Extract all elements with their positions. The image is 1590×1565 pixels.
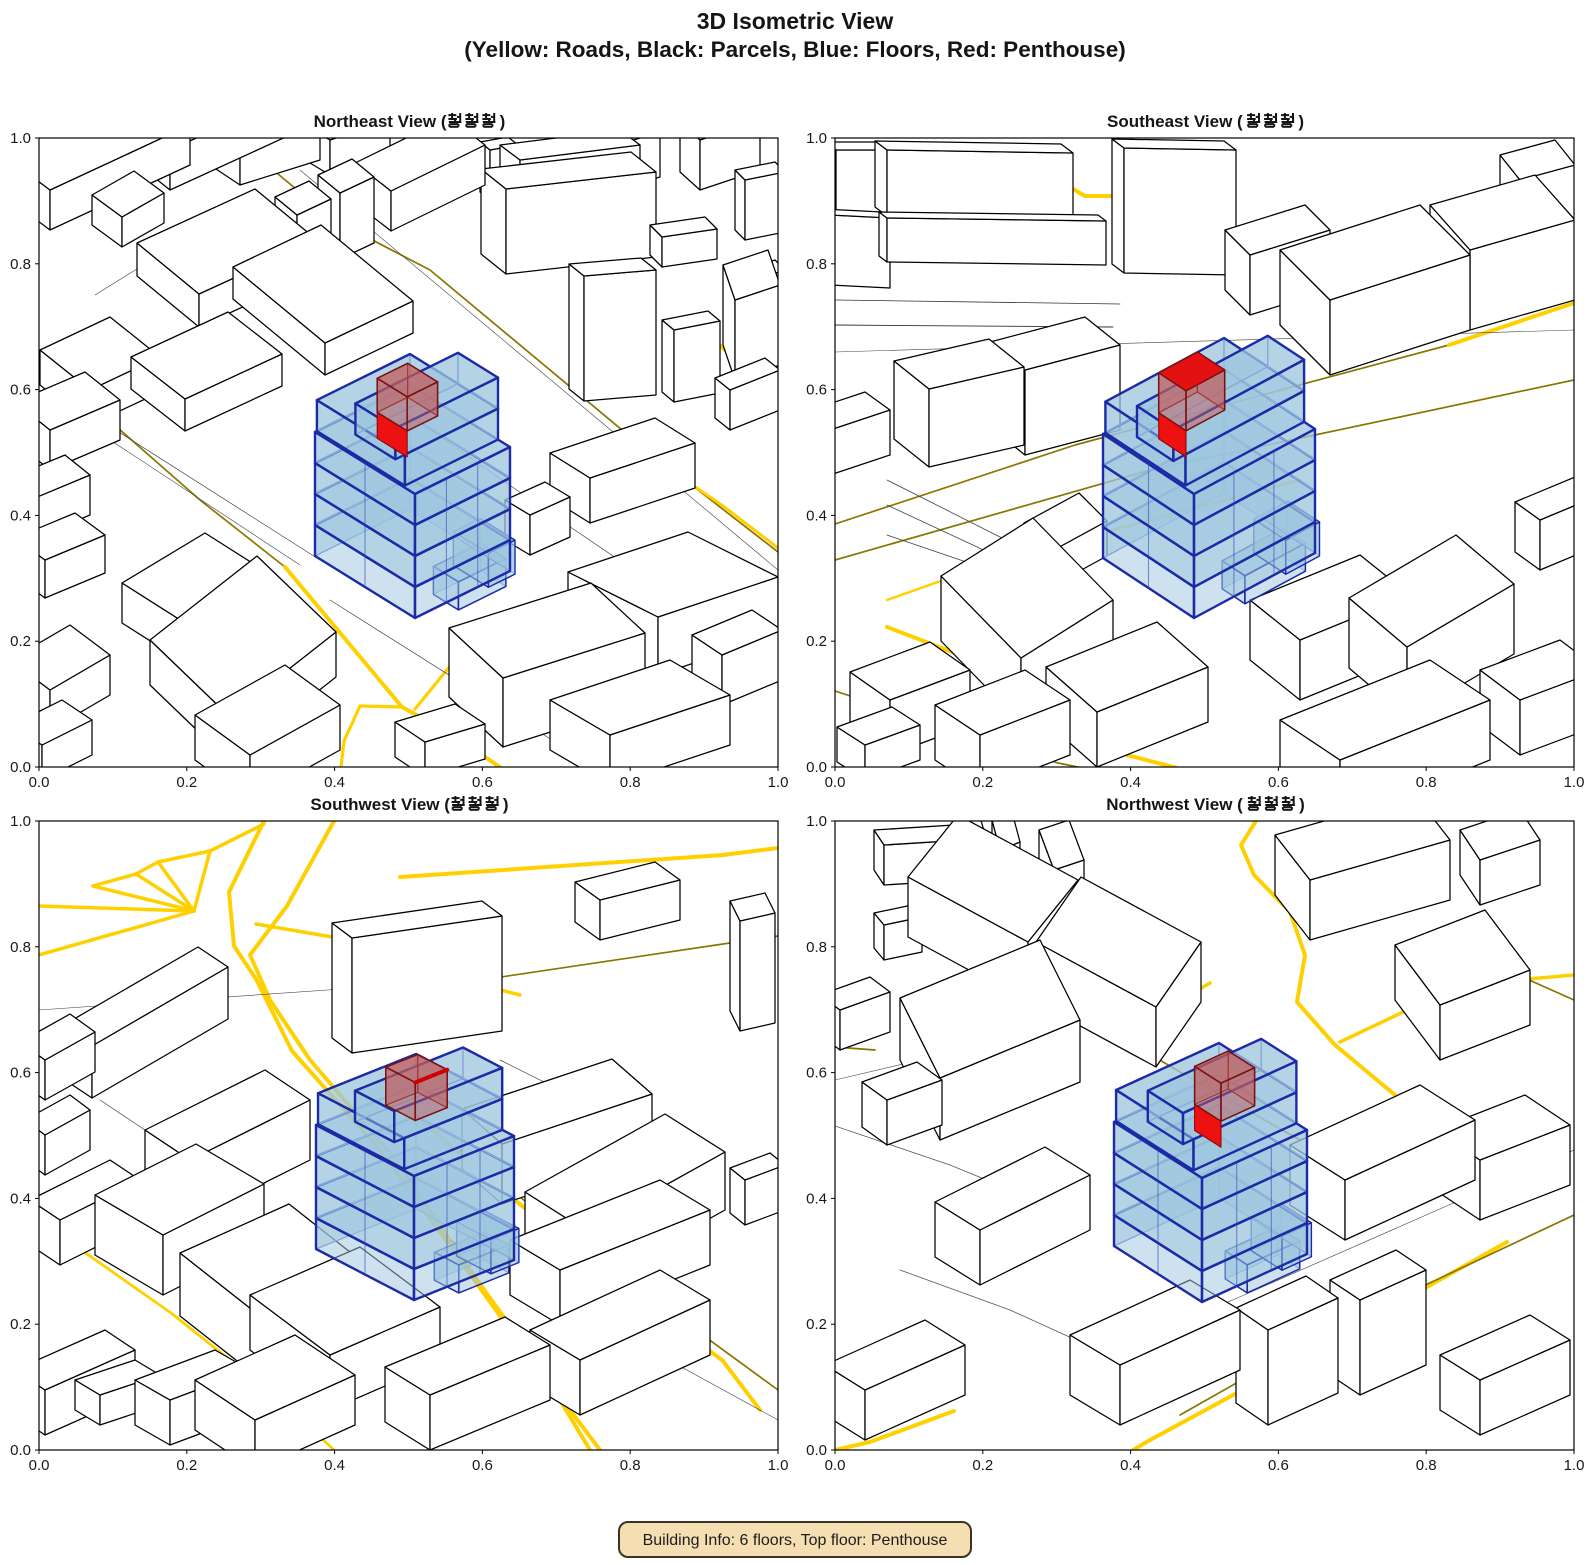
svg-text:Building Info: 6 floors, Top f: Building Info: 6 floors, Top floor: Pent… xyxy=(643,1532,948,1549)
svg-text:0.6: 0.6 xyxy=(10,1065,31,1082)
svg-text:0.8: 0.8 xyxy=(806,939,827,956)
svg-text:0.0: 0.0 xyxy=(806,1442,827,1459)
svg-text:0.2: 0.2 xyxy=(176,774,197,791)
svg-text:0.0: 0.0 xyxy=(825,774,846,791)
svg-text:0.0: 0.0 xyxy=(10,759,31,776)
svg-text:0.8: 0.8 xyxy=(10,256,31,273)
svg-text:1.0: 1.0 xyxy=(1564,1457,1585,1474)
svg-text:Northeast View (: Northeast View ( xyxy=(314,112,447,131)
svg-text:Southwest View (: Southwest View ( xyxy=(310,795,450,814)
svg-text:1.0: 1.0 xyxy=(10,813,31,830)
svg-text:1.0: 1.0 xyxy=(806,130,827,147)
svg-text:): ) xyxy=(500,112,506,131)
svg-text:0.6: 0.6 xyxy=(472,1457,493,1474)
svg-text:0.4: 0.4 xyxy=(806,1190,827,1207)
svg-text:(Yellow: Roads, Black: Parcels: (Yellow: Roads, Black: Parcels, Blue: Fl… xyxy=(464,37,1125,62)
svg-text:0.2: 0.2 xyxy=(806,633,827,650)
svg-text:0.0: 0.0 xyxy=(10,1442,31,1459)
svg-text:): ) xyxy=(1298,112,1304,131)
svg-text:): ) xyxy=(1299,795,1305,814)
svg-text:0.8: 0.8 xyxy=(620,774,641,791)
svg-text:0.0: 0.0 xyxy=(29,1457,50,1474)
svg-text:0.4: 0.4 xyxy=(1120,1457,1141,1474)
svg-text:0.2: 0.2 xyxy=(176,1457,197,1474)
svg-text:0.8: 0.8 xyxy=(1416,1457,1437,1474)
svg-text:0.8: 0.8 xyxy=(1416,774,1437,791)
svg-text:0.6: 0.6 xyxy=(10,382,31,399)
svg-text:1.0: 1.0 xyxy=(10,130,31,147)
svg-text:0.6: 0.6 xyxy=(472,774,493,791)
svg-text:0.0: 0.0 xyxy=(29,774,50,791)
svg-text:): ) xyxy=(503,795,509,814)
svg-text:3D Isometric View: 3D Isometric View xyxy=(697,8,894,34)
svg-text:0.2: 0.2 xyxy=(10,633,31,650)
svg-text:0.6: 0.6 xyxy=(1268,1457,1289,1474)
svg-text:0.0: 0.0 xyxy=(825,1457,846,1474)
svg-text:0.0: 0.0 xyxy=(806,759,827,776)
svg-text:0.4: 0.4 xyxy=(324,774,345,791)
svg-text:0.6: 0.6 xyxy=(1268,774,1289,791)
svg-text:0.4: 0.4 xyxy=(10,1190,31,1207)
svg-text:0.8: 0.8 xyxy=(806,256,827,273)
svg-text:Northwest View (: Northwest View ( xyxy=(1106,795,1243,814)
svg-text:0.4: 0.4 xyxy=(324,1457,345,1474)
svg-text:0.4: 0.4 xyxy=(806,507,827,524)
svg-text:1.0: 1.0 xyxy=(806,813,827,830)
svg-text:0.8: 0.8 xyxy=(620,1457,641,1474)
svg-text:0.2: 0.2 xyxy=(806,1316,827,1333)
svg-text:1.0: 1.0 xyxy=(1564,774,1585,791)
svg-text:1.0: 1.0 xyxy=(768,774,789,791)
svg-text:1.0: 1.0 xyxy=(768,1457,789,1474)
svg-text:0.4: 0.4 xyxy=(10,507,31,524)
svg-text:Southeast View (: Southeast View ( xyxy=(1107,112,1243,131)
svg-text:0.4: 0.4 xyxy=(1120,774,1141,791)
svg-text:0.2: 0.2 xyxy=(10,1316,31,1333)
svg-text:0.2: 0.2 xyxy=(972,774,993,791)
svg-text:0.8: 0.8 xyxy=(10,939,31,956)
svg-text:0.2: 0.2 xyxy=(972,1457,993,1474)
svg-text:0.6: 0.6 xyxy=(806,382,827,399)
svg-text:0.6: 0.6 xyxy=(806,1065,827,1082)
